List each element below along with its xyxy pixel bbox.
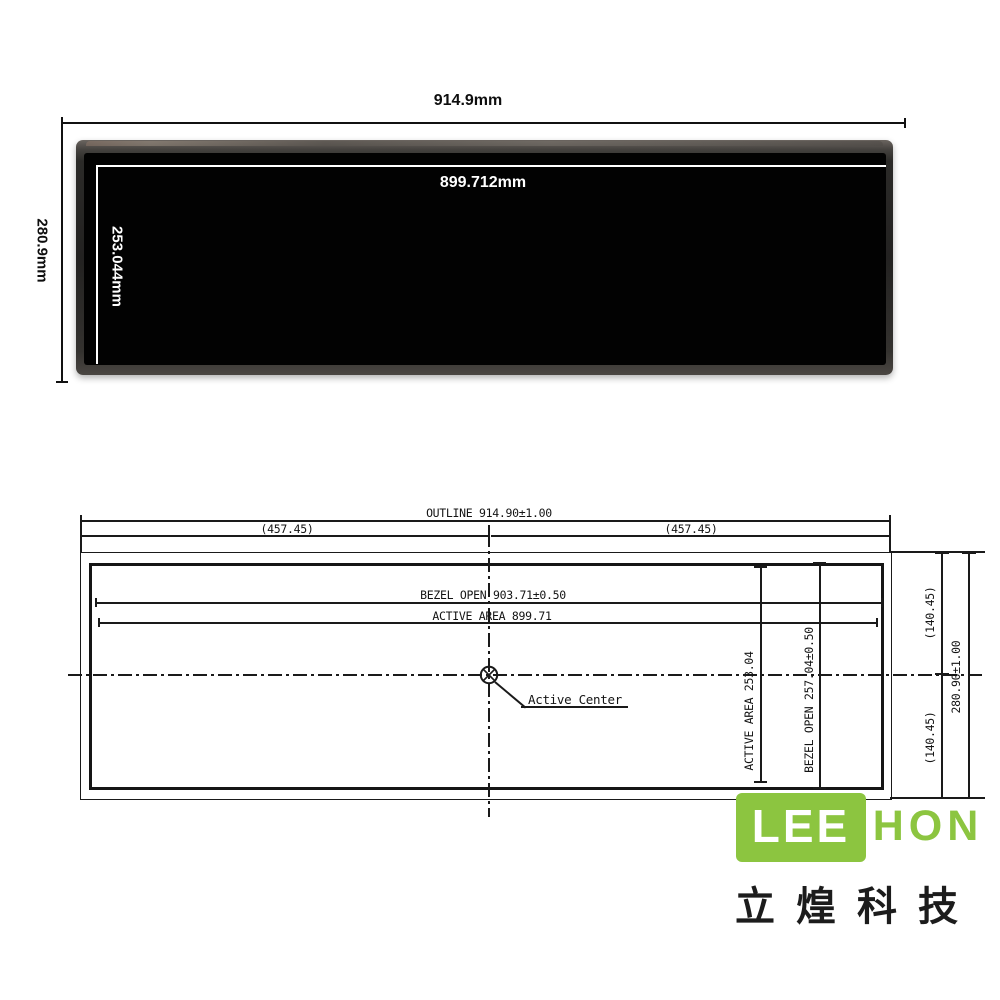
half-width-right-dim-line [491,535,890,537]
bezel-open-height-dim-label: BEZEL OPEN 257.04±0.50 [802,625,816,775]
dim-tick [876,618,878,627]
active-width-measure-line [97,165,886,167]
logo-lee-box: LEE [736,793,866,862]
outline-height-dim-label: 280.90±1.00 [949,635,963,719]
active-center-label: Active Center [528,692,628,707]
photo-outline-width-dim-line [62,122,905,124]
logo-lee-text: LEE [736,793,866,862]
photo-active-width-label: 899.712mm [403,174,563,192]
dim-tick [98,618,100,627]
active-area-height-dim-label: ACTIVE AREA 253.04 [742,649,756,773]
photo-outline-height-label: 280.9mm [34,213,51,289]
photo-width-dim-end-tick [904,118,906,128]
half-width-right-label: (457.45) [641,522,741,536]
dim-tick [95,598,97,607]
dim-tick [754,566,767,568]
logo-hon-text: HON [864,793,992,862]
active-height-measure-line [96,165,98,364]
dim-tick [813,562,826,564]
bezel-open-width-dim-line [95,602,883,604]
active-area-height-dim-line [760,567,762,783]
photo-height-dim-end-tick [56,381,68,383]
bezel-open-width-dim-label: BEZEL OPEN 903.71±0.50 [373,588,613,602]
dim-tick [813,787,826,789]
logo-subtitle-chinese: 立煌科技 [735,874,991,932]
outline-width-dim-label: OUTLINE 914.90±1.00 [389,506,589,520]
active-area-width-dim-label: ACTIVE AREA 899.71 [392,609,592,623]
photo-outline-width-label: 914.9mm [398,92,538,110]
dim-tick [962,552,976,554]
outline-height-dim-line [968,553,970,799]
dim-tick [935,673,949,675]
photo-active-height-label: 253.044mm [109,223,126,311]
half-height-top-label: (140.45) [923,583,937,643]
bezel-reflection [86,141,883,146]
half-width-left-dim-line [82,535,488,537]
half-width-left-label: (457.45) [237,522,337,536]
half-height-bottom-label: (140.45) [923,708,937,768]
half-height-dim-line [941,553,943,799]
bezel-open-height-dim-line [819,563,821,789]
dim-tick [881,598,883,607]
outline-width-dim-line [82,520,891,522]
horizontal-centerline [68,674,985,676]
dim-tick [754,781,767,783]
dim-tick [935,552,949,554]
spec-sheet: 914.9mm 280.9mm 899.712mm 253.044mm OUTL… [0,0,1000,1000]
photo-outline-height-dim-line [61,117,63,383]
